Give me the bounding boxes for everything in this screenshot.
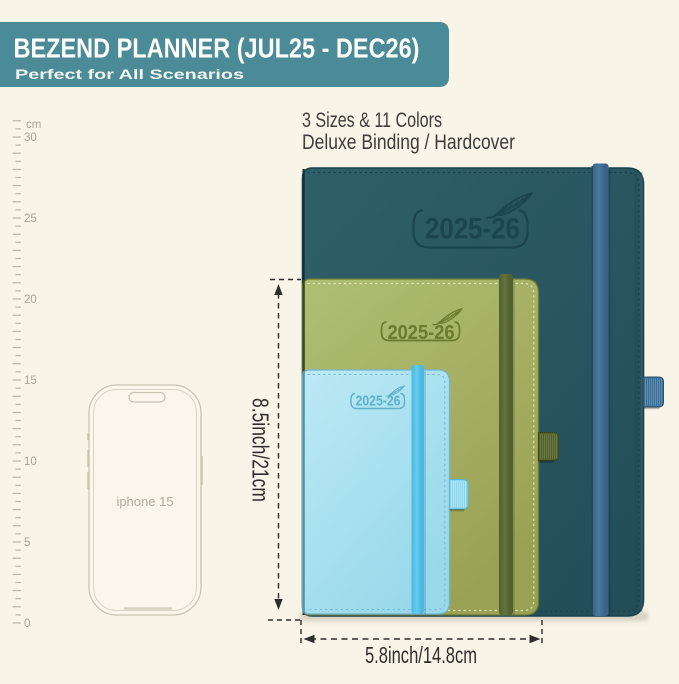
svg-text:20: 20 bbox=[24, 294, 37, 306]
svg-text:10: 10 bbox=[24, 456, 37, 468]
svg-text:3 Sizes & 11 Colors: 3 Sizes & 11 Colors bbox=[302, 109, 442, 132]
svg-text:5: 5 bbox=[24, 537, 30, 549]
svg-text:8.5inch/21cm: 8.5inch/21cm bbox=[248, 398, 274, 502]
svg-text:cm: cm bbox=[26, 119, 41, 131]
svg-text:0: 0 bbox=[24, 618, 30, 630]
svg-text:2025-26: 2025-26 bbox=[356, 393, 401, 410]
svg-text:2025-26: 2025-26 bbox=[388, 321, 455, 344]
svg-text:Perfect for All Scenarios: Perfect for All Scenarios bbox=[15, 66, 244, 82]
svg-text:Deluxe Binding / Hardcover: Deluxe Binding / Hardcover bbox=[302, 131, 515, 154]
svg-text:BEZEND PLANNER (JUL25 - DEC26): BEZEND PLANNER (JUL25 - DEC26) bbox=[14, 33, 420, 64]
svg-text:25: 25 bbox=[24, 213, 37, 225]
svg-text:30: 30 bbox=[24, 132, 37, 144]
svg-text:2025-26: 2025-26 bbox=[425, 213, 520, 246]
svg-text:15: 15 bbox=[24, 375, 37, 387]
svg-text:iphone 15: iphone 15 bbox=[116, 494, 173, 509]
svg-text:5.8inch/14.8cm: 5.8inch/14.8cm bbox=[365, 642, 477, 668]
